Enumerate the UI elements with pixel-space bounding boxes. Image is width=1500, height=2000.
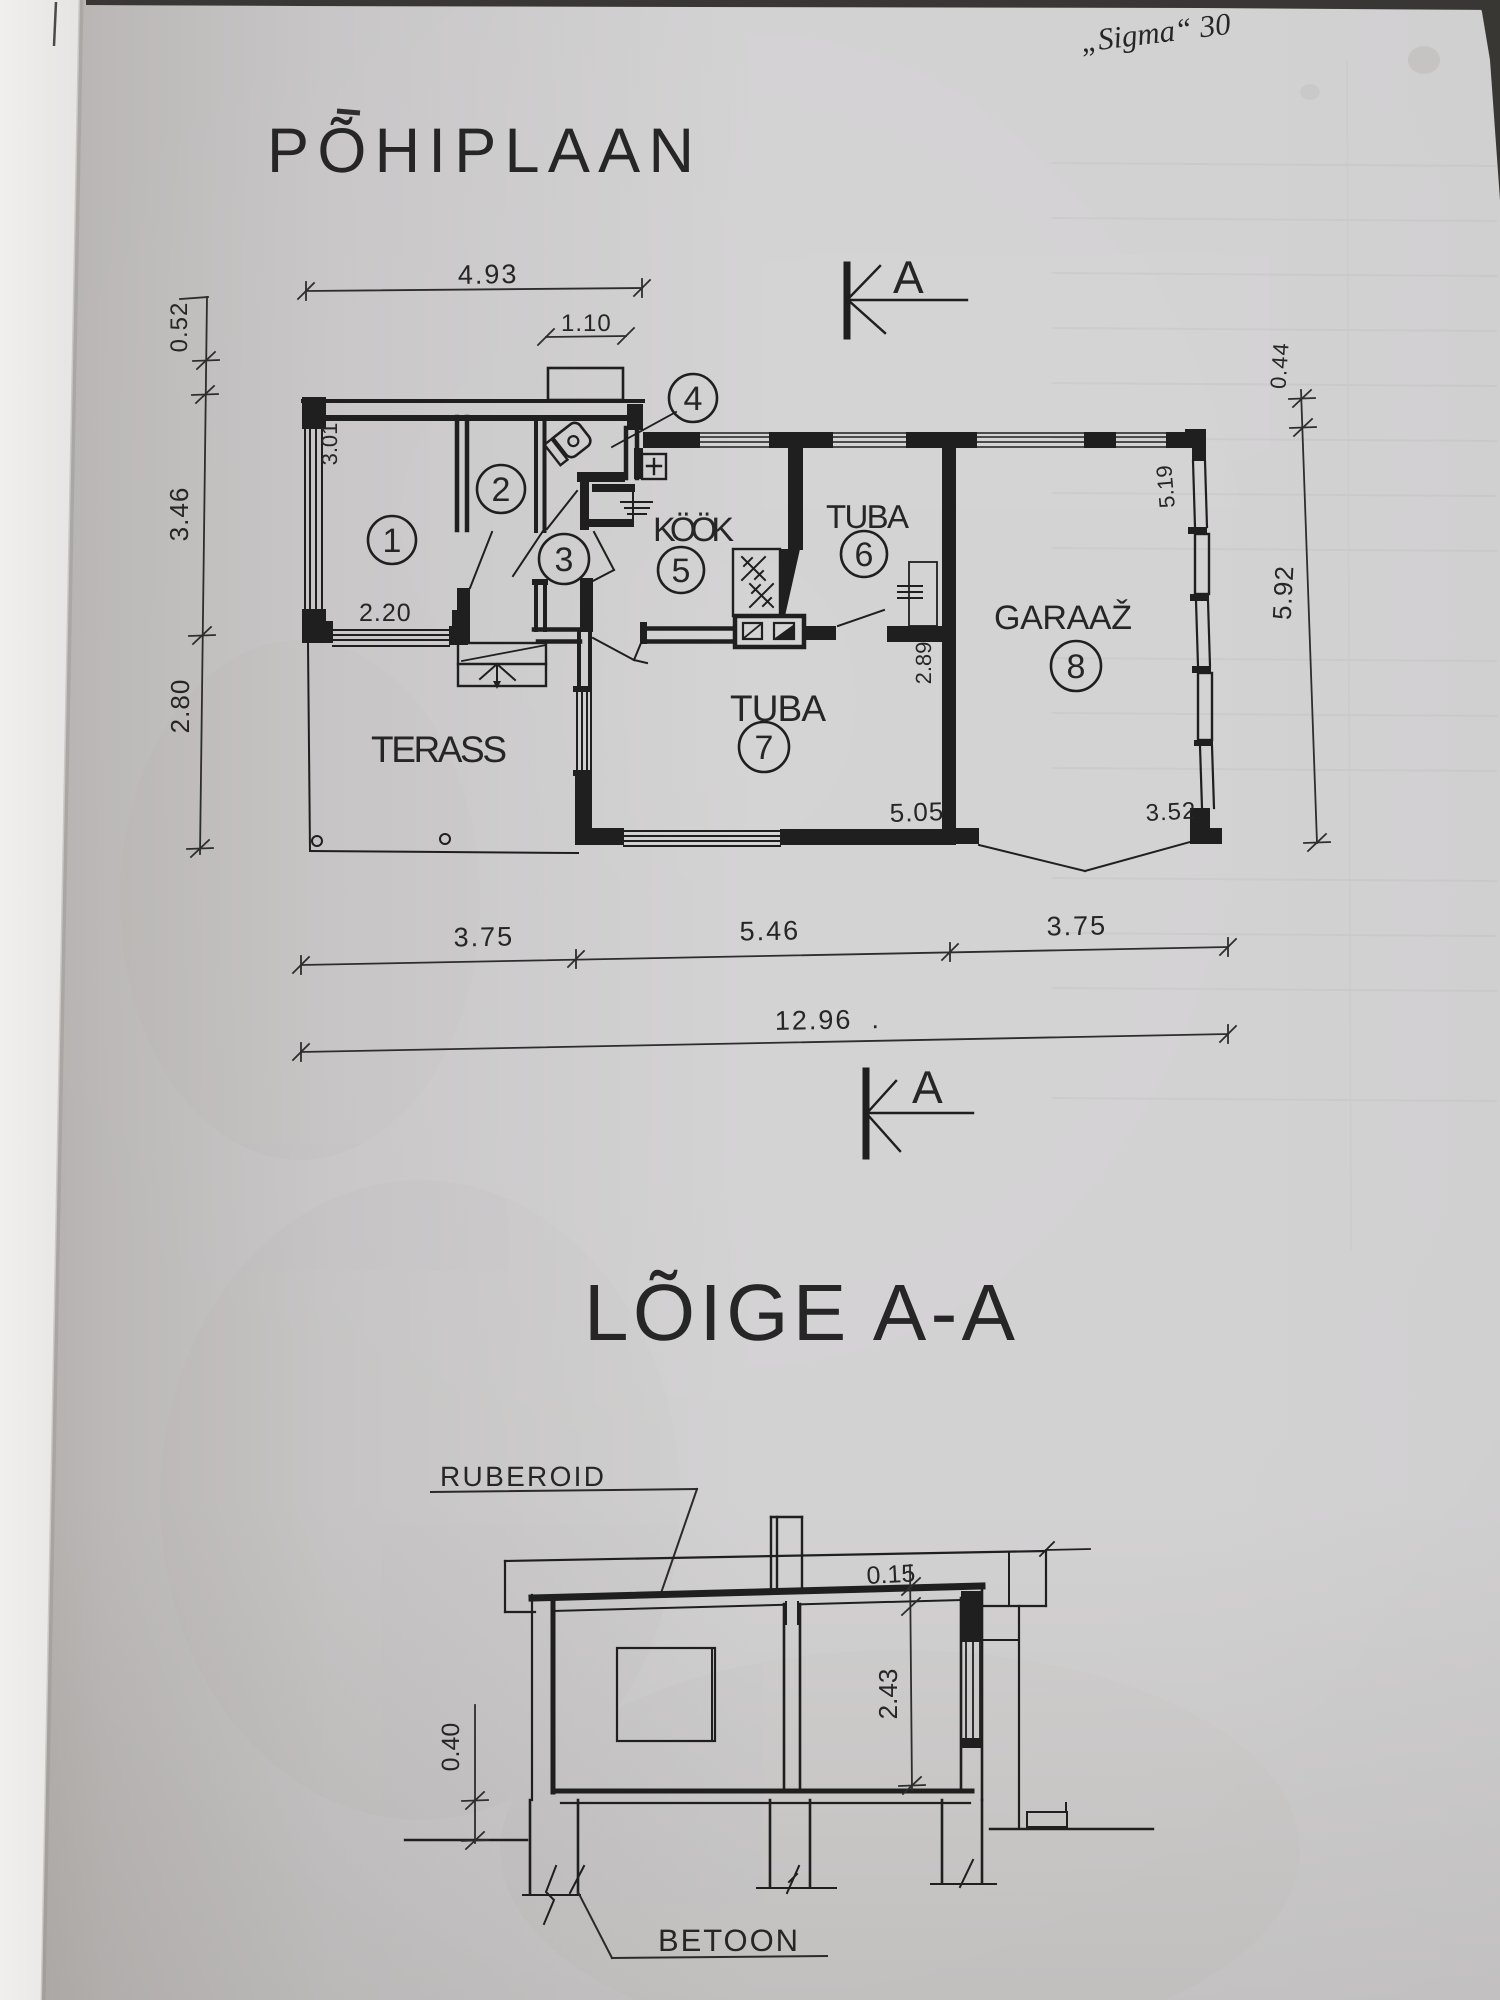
svg-text:2.80: 2.80: [165, 679, 195, 734]
svg-text:GARAAŽ: GARAAŽ: [994, 599, 1136, 637]
svg-text:A: A: [893, 251, 924, 303]
svg-text:4: 4: [684, 380, 703, 418]
svg-text:0.15: 0.15: [866, 1559, 916, 1590]
svg-text:0.52: 0.52: [166, 302, 193, 353]
svg-text:1: 1: [383, 522, 402, 560]
svg-text:5.19: 5.19: [1151, 464, 1180, 509]
svg-text:2: 2: [492, 471, 511, 509]
svg-text:3.46: 3.46: [164, 487, 194, 542]
svg-text:2.89: 2.89: [911, 642, 936, 685]
svg-text:1.10: 1.10: [561, 310, 612, 337]
svg-text:5: 5: [672, 552, 691, 590]
svg-text:3.52: 3.52: [1145, 797, 1197, 827]
svg-text:TUBA: TUBA: [826, 498, 912, 535]
svg-text:4.93: 4.93: [458, 259, 519, 290]
svg-text:3: 3: [555, 541, 574, 579]
svg-text:A: A: [912, 1061, 943, 1113]
svg-text:3.75: 3.75: [453, 921, 514, 952]
svg-text:8: 8: [1067, 648, 1086, 686]
svg-text:2.43: 2.43: [873, 1669, 903, 1720]
svg-text:7: 7: [755, 729, 774, 767]
svg-text:12.96 .: 12.96 .: [775, 1004, 882, 1036]
svg-text:PÕHIPLAAN: PÕHIPLAAN: [267, 116, 704, 186]
svg-text:TERASS: TERASS: [371, 729, 512, 770]
svg-text:BETOON: BETOON: [658, 1923, 802, 1958]
svg-text:5.05: 5.05: [889, 796, 945, 828]
svg-text:LÕIGE A-A: LÕIGE A-A: [584, 1268, 1021, 1357]
svg-text:TUBA: TUBA: [730, 688, 830, 729]
svg-text:3.01: 3.01: [317, 423, 342, 466]
svg-text:2.20: 2.20: [359, 599, 412, 627]
svg-text:0.44: 0.44: [1265, 341, 1293, 389]
svg-text:6: 6: [855, 536, 874, 574]
svg-text:3.75: 3.75: [1046, 910, 1107, 941]
svg-text:0.40: 0.40: [437, 1723, 465, 1772]
svg-text:RUBEROID: RUBEROID: [440, 1461, 606, 1492]
svg-text:5.46: 5.46: [739, 915, 800, 946]
svg-text:KÖÖK: KÖÖK: [653, 511, 737, 549]
svg-text:5.92: 5.92: [1267, 564, 1300, 620]
